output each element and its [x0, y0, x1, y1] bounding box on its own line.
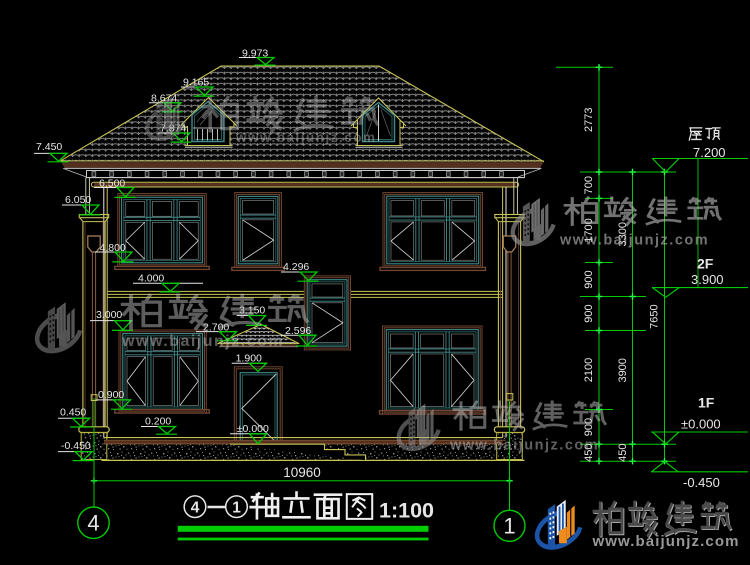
- svg-text:2F: 2F: [697, 256, 714, 272]
- svg-text:0.200: 0.200: [145, 416, 171, 428]
- svg-text:www.baijunjz.com: www.baijunjz.com: [235, 130, 377, 145]
- svg-text:4: 4: [191, 499, 200, 516]
- svg-text:6.050: 6.050: [65, 194, 91, 206]
- svg-text:-0.450: -0.450: [61, 440, 91, 452]
- svg-text:4.296: 4.296: [283, 261, 309, 273]
- svg-text:1:100: 1:100: [379, 499, 434, 523]
- svg-text:700: 700: [583, 176, 595, 194]
- svg-text:7.450: 7.450: [36, 141, 62, 153]
- svg-text:900: 900: [583, 270, 595, 288]
- svg-text:7650: 7650: [649, 304, 661, 328]
- svg-text:www.baijunjz.com: www.baijunjz.com: [559, 233, 709, 249]
- svg-text:900: 900: [583, 418, 595, 436]
- svg-text:1F: 1F: [698, 395, 715, 411]
- svg-text:0.900: 0.900: [98, 389, 124, 401]
- svg-text:www.baijunjz.com: www.baijunjz.com: [449, 438, 599, 454]
- svg-text:3900: 3900: [617, 358, 629, 382]
- svg-text:www.baijunjz.com: www.baijunjz.com: [121, 333, 284, 350]
- svg-text:10960: 10960: [283, 465, 321, 480]
- svg-text:-0.450: -0.450: [683, 475, 720, 490]
- svg-text:1: 1: [232, 499, 241, 516]
- svg-text:4: 4: [87, 511, 99, 536]
- svg-text:1: 1: [503, 514, 515, 539]
- svg-text:450: 450: [617, 444, 629, 462]
- svg-text:www.baijunjz.com: www.baijunjz.com: [592, 533, 740, 550]
- svg-text:2773: 2773: [583, 107, 595, 131]
- svg-text:900: 900: [583, 304, 595, 322]
- svg-text:3.900: 3.900: [691, 272, 724, 287]
- svg-text:2100: 2100: [583, 358, 595, 382]
- svg-text:±0.000: ±0.000: [681, 417, 721, 432]
- svg-text:3.000: 3.000: [96, 309, 122, 321]
- svg-text:7.200: 7.200: [693, 145, 726, 160]
- svg-text:0.450: 0.450: [60, 407, 86, 419]
